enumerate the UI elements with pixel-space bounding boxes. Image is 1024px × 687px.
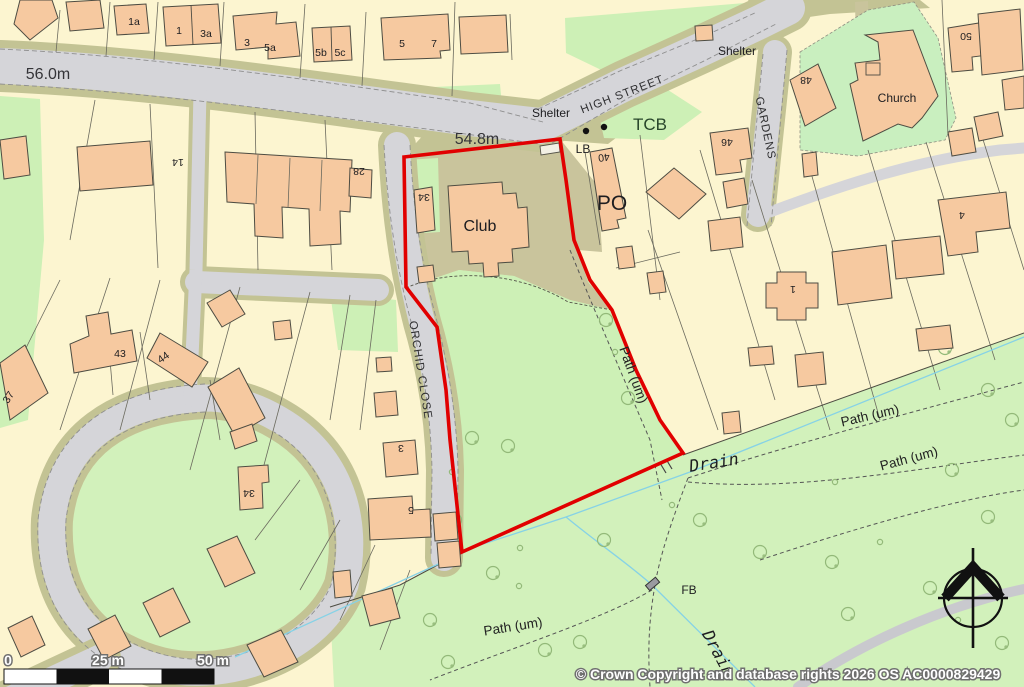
label-shelter-east: Shelter (718, 44, 756, 58)
house-number: 5 (399, 38, 405, 50)
spot-height-56: 56.0m (26, 66, 70, 83)
building (722, 411, 741, 434)
house-number: 5 (408, 504, 414, 516)
house-number: 4 (959, 209, 965, 221)
spot-height-548: 54.8m (455, 131, 499, 148)
label-lb: LB (576, 142, 591, 156)
building (892, 236, 944, 279)
house-number: 50 (960, 30, 972, 42)
map-canvas: 56.0m 54.8m HIGH STREET GARDENS ORCHID C… (0, 0, 1024, 687)
os-site-plan: 56.0m 54.8m HIGH STREET GARDENS ORCHID C… (0, 0, 1024, 687)
building (66, 0, 104, 31)
scale-25m: 25 m (92, 652, 124, 668)
building (978, 9, 1023, 75)
building (948, 128, 976, 156)
house-number: 48 (800, 74, 812, 86)
house-number: 34 (418, 191, 430, 203)
building (273, 320, 292, 340)
scale-50m: 50 m (197, 652, 229, 668)
building (0, 136, 30, 179)
building (374, 391, 398, 417)
house-number: 1a (128, 16, 140, 28)
building (417, 265, 435, 283)
building (708, 217, 743, 251)
building-5-7 (381, 14, 450, 60)
house-number: 3a (200, 28, 212, 40)
building (376, 357, 392, 372)
scale-zero: 0 (4, 652, 12, 668)
label-tcb: TCB (633, 115, 667, 134)
house-number: 1 (790, 283, 796, 295)
house-number: 46 (721, 136, 733, 148)
building (832, 245, 892, 305)
house-number: 34 (243, 487, 255, 499)
house-number: 1 (176, 25, 182, 37)
house-number: 5a (264, 42, 276, 54)
post-dot (601, 124, 607, 130)
building (1002, 76, 1024, 110)
label-club: Club (464, 218, 497, 235)
building (459, 15, 508, 54)
building (748, 346, 774, 366)
building (647, 271, 666, 294)
house-number: 28 (353, 165, 365, 177)
house-number: 3 (398, 442, 404, 454)
house-number: 5c (334, 47, 345, 59)
copyright-text: © Crown Copyright and database rights 20… (576, 666, 1001, 682)
building (916, 325, 953, 351)
label-fb: FB (681, 583, 696, 597)
house-number: 3 (244, 37, 250, 49)
building (616, 246, 635, 269)
building (974, 112, 1003, 141)
building (433, 512, 458, 541)
building (795, 352, 826, 387)
building (437, 541, 461, 568)
house-number: 14 (172, 156, 184, 168)
label-church: Church (878, 91, 917, 105)
house-number: 5b (315, 47, 327, 59)
building-shelter-east (695, 25, 713, 41)
building (802, 152, 818, 177)
building (77, 141, 153, 191)
house-number: 7 (431, 38, 437, 50)
house-number: 43 (114, 348, 126, 360)
house-number: 40 (597, 150, 610, 164)
building (723, 178, 748, 208)
label-shelter-west: Shelter (532, 106, 570, 120)
building (333, 570, 352, 598)
letter-box-dot (583, 128, 589, 134)
label-po: PO (597, 192, 627, 215)
